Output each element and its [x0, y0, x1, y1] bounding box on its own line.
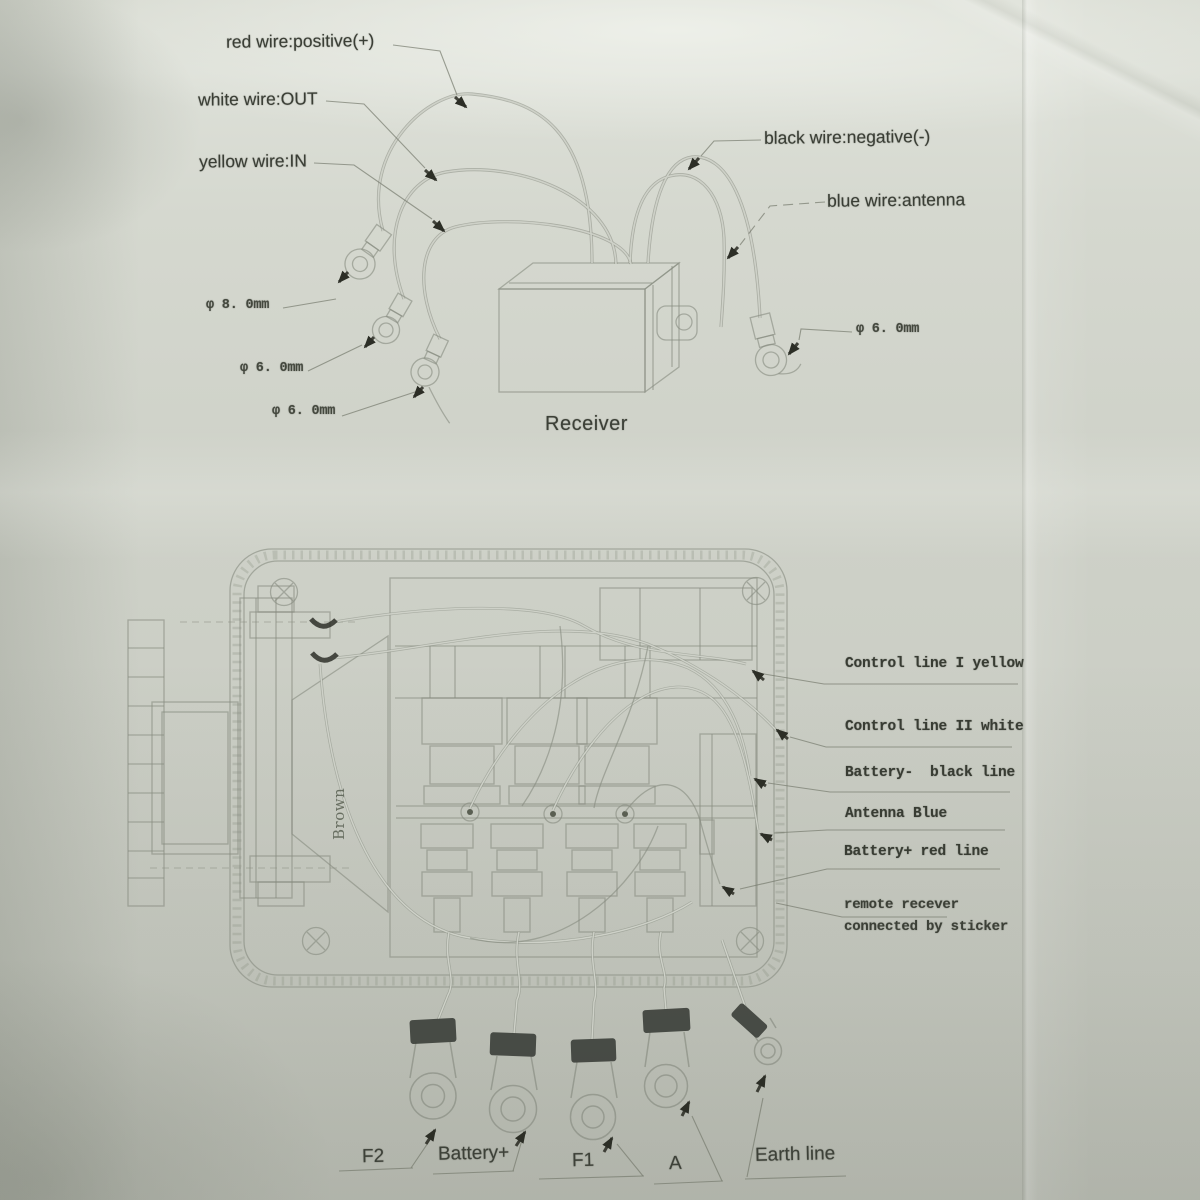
ring-terminal-6mm-1	[368, 290, 417, 348]
receiver-box	[499, 263, 697, 392]
wiring-diagram-linework	[0, 0, 1200, 1200]
label-battery-minus: Battery- black line	[845, 766, 1015, 781]
terminal-label-battery: Battery+	[438, 1143, 510, 1164]
label-control-line-1: Control line I yellow	[845, 657, 1024, 672]
note-remote-receiver-2: connected by sticker	[844, 920, 1008, 935]
contactor-internals	[390, 578, 757, 957]
heat-shrink-sleeves	[409, 1002, 768, 1062]
bottom-ring-lugs	[410, 1018, 782, 1140]
label-yellow-wire: yellow wire:IN	[199, 151, 307, 171]
terminal-label-f2: F2	[362, 1147, 385, 1167]
receiver-wires	[378, 94, 760, 339]
label-white-wire: white wire:OUT	[198, 89, 318, 109]
scanned-wiring-diagram-photo: red wire:positive(+) white wire:OUT yell…	[0, 0, 1200, 1200]
label-battery-plus-line: Battery+ red line	[844, 845, 989, 860]
arrow-marks	[339, 97, 798, 1152]
label-black-wire: black wire:negative(-)	[764, 127, 930, 147]
output-wire-tails	[438, 932, 746, 1040]
label-antenna-blue: Antenna Blue	[845, 807, 947, 822]
label-gauge-6mm-right: φ 6. 0mm	[856, 323, 919, 337]
label-gauge-6mm-2: φ 6. 0mm	[272, 405, 335, 419]
ring-terminal-8mm	[339, 221, 396, 285]
label-brown-wire: Brown	[330, 788, 348, 840]
label-gauge-6mm-1: φ 6. 0mm	[240, 362, 303, 376]
ring-terminal-6mm-2	[397, 332, 481, 424]
wire-clips	[311, 619, 337, 660]
control-box-drawing	[128, 549, 787, 1140]
receiver-leader-lines	[283, 45, 852, 416]
ring-terminal-6mm-right	[745, 309, 803, 381]
control-box-housing	[230, 549, 787, 987]
terminal-label-earth: Earth line	[755, 1144, 836, 1166]
note-remote-receiver-1: remote recever	[844, 898, 959, 913]
receiver-drawing	[339, 94, 802, 423]
label-blue-wire: blue wire:antenna	[827, 190, 965, 210]
label-red-wire: red wire:positive(+)	[226, 31, 375, 51]
terminal-label-a: A	[669, 1154, 682, 1174]
terminal-label-f1: F1	[572, 1151, 595, 1171]
label-control-line-2: Control line II white	[845, 720, 1024, 735]
receiver-caption: Receiver	[545, 414, 628, 435]
left-mount-assembly	[128, 586, 388, 912]
label-gauge-8mm: φ 8. 0mm	[206, 299, 269, 313]
